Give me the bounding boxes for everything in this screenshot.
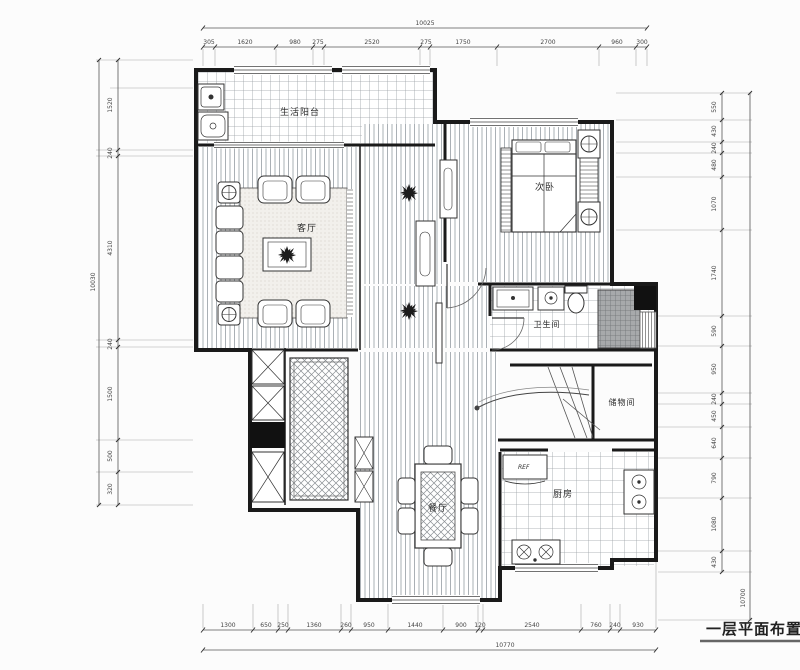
dim-label: 1360 bbox=[306, 622, 321, 629]
dim-label: 250 bbox=[277, 622, 289, 629]
kitchen-sink bbox=[624, 470, 654, 514]
dim-label: 4310 bbox=[107, 240, 114, 255]
dim-label: 240 bbox=[711, 393, 718, 405]
stove bbox=[512, 540, 560, 564]
dim-label: 640 bbox=[711, 437, 718, 449]
dim-label: 240 bbox=[711, 142, 718, 154]
dim-label: 790 bbox=[711, 472, 718, 484]
dim-label: 275 bbox=[312, 39, 324, 46]
dim-label: 590 bbox=[711, 325, 718, 337]
rug-fringe bbox=[347, 189, 353, 317]
plant-icon bbox=[399, 183, 418, 202]
tick-marks bbox=[201, 628, 658, 653]
lower-left-block bbox=[250, 350, 373, 502]
dim-label: 1440 bbox=[407, 622, 422, 629]
dim-label: 950 bbox=[363, 622, 375, 629]
living-label: 客厅 bbox=[297, 222, 317, 234]
laundry-tub bbox=[198, 112, 228, 140]
dim-label: 900 bbox=[455, 622, 467, 629]
dim-label: 1300 bbox=[220, 622, 235, 629]
dim-label: 240 bbox=[609, 622, 621, 629]
dim-label: 320 bbox=[107, 483, 114, 495]
stair-arrow-start bbox=[475, 406, 480, 411]
dim-label: 650 bbox=[260, 622, 272, 629]
title-block: 一层平面布置图 bbox=[700, 620, 800, 641]
hall-cabinet-2 bbox=[416, 221, 435, 286]
dim-label: 2700 bbox=[540, 39, 555, 46]
wash-basin bbox=[538, 287, 564, 310]
tick-marks bbox=[720, 91, 752, 622]
dim-label: 1740 bbox=[711, 265, 718, 280]
dim-label: 305 bbox=[203, 39, 215, 46]
dim-label: 120 bbox=[474, 622, 486, 629]
wardrobe-strip bbox=[501, 148, 511, 232]
dimension-chain-top: 10025 305 1620 980 275 2520 275 1750 270… bbox=[201, 20, 649, 50]
dim-label: 240 bbox=[107, 147, 114, 159]
wall-stub bbox=[436, 303, 442, 363]
dimension-chain-bottom: 1300 650 250 1360 260 950 1440 900 120 2… bbox=[201, 622, 658, 653]
bedroom-furniture bbox=[501, 130, 600, 232]
floorplan-svg: 10025 305 1620 980 275 2520 275 1750 270… bbox=[0, 0, 800, 670]
dim-label: 10700 bbox=[740, 588, 747, 607]
column-solid bbox=[634, 286, 656, 310]
tick-marks bbox=[97, 58, 120, 507]
dim-label: 2540 bbox=[524, 622, 539, 629]
dim-label: 1500 bbox=[107, 386, 114, 401]
dim-label: 950 bbox=[711, 363, 718, 375]
balcony-label: 生活阳台 bbox=[280, 106, 320, 118]
plant-icon bbox=[399, 301, 418, 320]
dim-label: 430 bbox=[711, 125, 718, 137]
dim-label: 1750 bbox=[455, 39, 470, 46]
dim-label: 1520 bbox=[107, 97, 114, 112]
vanity-counter bbox=[493, 287, 533, 310]
dim-label: 1620 bbox=[237, 39, 252, 46]
dim-label: 930 bbox=[632, 622, 644, 629]
dimension-chain-right: 550 430 240 480 1070 1740 590 950 240 45… bbox=[711, 91, 752, 622]
stair-treads bbox=[548, 367, 593, 438]
dim-label: 1080 bbox=[711, 516, 718, 531]
bathroom-label: 卫生间 bbox=[534, 319, 561, 329]
shaft-hatched bbox=[290, 358, 348, 500]
dim-label: 980 bbox=[289, 39, 301, 46]
pillow bbox=[516, 142, 541, 152]
dim-label: 1070 bbox=[711, 196, 718, 211]
dimension-chain-left: 1520 240 4310 240 1500 500 320 10030 bbox=[90, 58, 120, 507]
fridge-label: REF bbox=[518, 464, 530, 471]
dim-label: 10025 bbox=[415, 20, 434, 27]
dim-label: 960 bbox=[611, 39, 623, 46]
pillow bbox=[545, 142, 570, 152]
kitchen-label: 厨房 bbox=[553, 488, 573, 500]
dim-label: 480 bbox=[711, 159, 718, 171]
bedside-units bbox=[578, 130, 600, 232]
dim-label: 550 bbox=[711, 101, 718, 113]
bedroom-window bbox=[470, 117, 578, 127]
dim-label: 760 bbox=[590, 622, 602, 629]
vent-shaft bbox=[640, 312, 656, 348]
living-room-furniture bbox=[216, 176, 353, 327]
hall-mid-floor bbox=[362, 286, 488, 348]
dining-window bbox=[392, 595, 480, 605]
column-solid bbox=[250, 422, 285, 448]
dim-label: 10770 bbox=[495, 642, 514, 649]
hall-cabinet-1 bbox=[440, 160, 457, 218]
shower-area bbox=[598, 290, 640, 348]
floorplan-page: 10025 305 1620 980 275 2520 275 1750 270… bbox=[0, 0, 800, 670]
dining-label: 餐厅 bbox=[428, 502, 448, 514]
storage-label: 储物间 bbox=[609, 397, 636, 407]
dim-label: 2520 bbox=[364, 39, 379, 46]
balcony-fixtures bbox=[198, 84, 228, 140]
dim-label: 275 bbox=[420, 39, 432, 46]
dim-label: 430 bbox=[711, 556, 718, 568]
dim-label: 240 bbox=[107, 338, 114, 350]
drawing-title: 一层平面布置图 bbox=[706, 620, 800, 638]
dim-label: 300 bbox=[636, 39, 648, 46]
living-balcony-slider bbox=[214, 142, 344, 149]
dim-label: 500 bbox=[107, 450, 114, 462]
bedroom-label: 次卧 bbox=[535, 181, 555, 193]
plant-icon bbox=[277, 245, 296, 264]
dim-label: 10030 bbox=[90, 272, 97, 291]
dim-label: 450 bbox=[711, 410, 718, 422]
dim-label: 260 bbox=[340, 622, 352, 629]
balcony-window-right bbox=[342, 65, 430, 75]
side-cabinet bbox=[355, 437, 373, 502]
washing-machine bbox=[198, 84, 224, 110]
balcony-window-left bbox=[234, 65, 332, 75]
